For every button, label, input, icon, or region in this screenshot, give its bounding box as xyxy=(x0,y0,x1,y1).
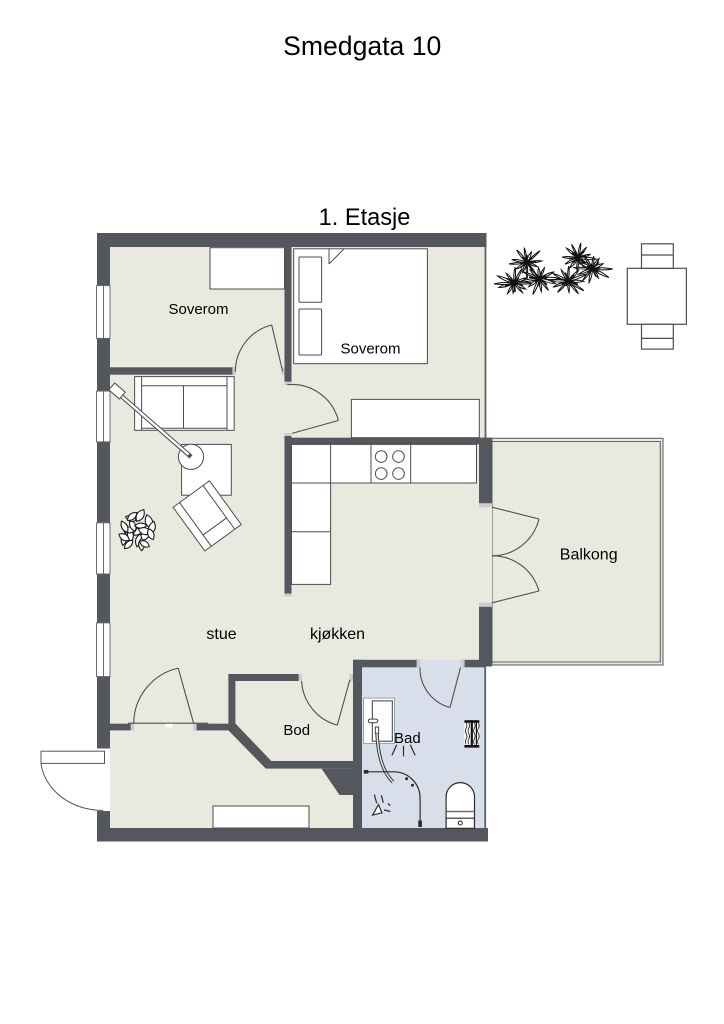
svg-text:Soverom: Soverom xyxy=(340,340,400,357)
svg-text:Smedgata 10: Smedgata 10 xyxy=(283,31,441,61)
svg-text:kjøkken: kjøkken xyxy=(310,626,365,643)
svg-text:1. Etasje: 1. Etasje xyxy=(319,205,411,231)
svg-text:Bad: Bad xyxy=(394,730,421,747)
svg-text:stue: stue xyxy=(206,626,236,643)
svg-text:Bod: Bod xyxy=(283,722,310,739)
svg-text:Soverom: Soverom xyxy=(168,301,228,318)
svg-text:Balkong: Balkong xyxy=(560,547,618,564)
